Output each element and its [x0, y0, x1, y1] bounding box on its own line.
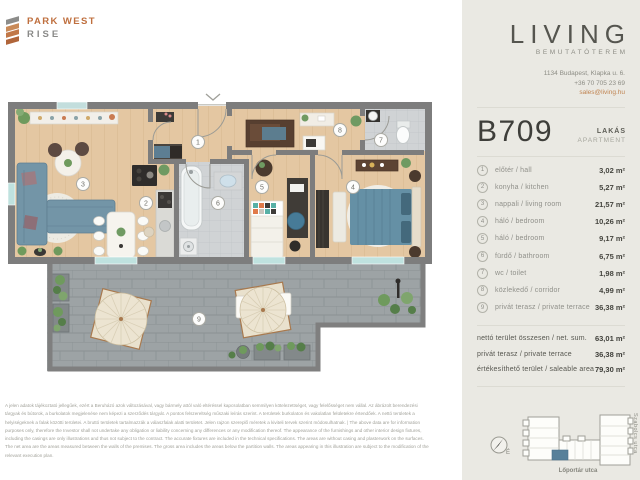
room-area: 10,26 m²: [595, 217, 625, 226]
room-number-badge: 8: [477, 285, 488, 296]
total-row: privát terasz / private terrace36,38 m²: [477, 347, 625, 362]
room-area: 4,99 m²: [599, 286, 625, 295]
plant: [159, 165, 170, 176]
room-row: 7wc / toilet1,98 m²: [477, 265, 625, 282]
phone-number: +36 70 705 23 69: [477, 79, 625, 89]
room-name: konyha / kitchen: [495, 184, 549, 191]
compass-icon: É: [491, 437, 510, 456]
svg-text:5: 5: [260, 185, 264, 192]
email-link[interactable]: sales@living.hu: [477, 88, 625, 98]
plan-badge-7: 7: [375, 134, 388, 147]
unit-highlight: [552, 450, 568, 460]
room-name: közlekedő / corridor: [495, 287, 560, 294]
plan-badge-3: 3: [77, 178, 90, 191]
unit-type-en: APARTMENT: [578, 137, 627, 144]
unit-code: B709: [477, 117, 553, 147]
room-number-badge: 4: [477, 216, 488, 227]
room-area: 9,17 m²: [599, 234, 625, 243]
bench: [333, 192, 346, 242]
unit-type-hu: LAKÁS: [578, 128, 627, 135]
disclaimer-line: tárgyak és bútorok, a burkolatok megjele…: [5, 410, 457, 418]
lamp: [397, 282, 400, 298]
total-value: 79,30 m²: [595, 365, 625, 374]
room-number-badge: 1: [477, 165, 488, 176]
total-row: értékesíthető terület / saleable area79,…: [477, 362, 625, 377]
room-row: 8közlekedő / corridor4,99 m²: [477, 282, 625, 299]
street-label-bottom: Lőportár utca: [559, 468, 598, 474]
disclaimer: A jelen adatok tájékoztató jellegűek, ez…: [5, 402, 457, 460]
svg-text:4: 4: [351, 185, 355, 192]
room-name: háló / bedroom: [495, 235, 545, 242]
plant: [351, 116, 362, 127]
disclaimer-line: The net area are the areas measured betw…: [5, 443, 457, 451]
room-row: 6fürdő / bathroom6,75 m²: [477, 247, 625, 264]
room-number-badge: 5: [477, 233, 488, 244]
room-name: nappali / living room: [495, 201, 561, 208]
building-outline: [523, 415, 633, 465]
room-row: 5háló / bedroom9,17 m²: [477, 230, 625, 247]
plant: [18, 247, 27, 256]
total-value: 63,01 m²: [595, 334, 625, 343]
living-wordmark: LIVING: [477, 20, 631, 48]
svg-text:1: 1: [196, 140, 200, 147]
chair: [75, 142, 89, 156]
room-area: 36,38 m²: [595, 303, 625, 312]
divider: [477, 107, 625, 108]
total-row: nettó terület összesen / net. sum.63,01 …: [477, 331, 625, 346]
room-row: 3nappali / living room21,57 m²: [477, 196, 625, 213]
room-number-badge: 6: [477, 251, 488, 262]
desk-chair: [288, 213, 305, 230]
room-number-badge: 3: [477, 199, 488, 210]
plan-badge-6: 6: [212, 197, 225, 210]
plan-badge-2: 2: [140, 197, 153, 210]
plan-badge-8: 8: [334, 124, 347, 137]
room-area: 3,02 m²: [599, 166, 625, 175]
wardrobe: [316, 190, 329, 248]
svg-text:9: 9: [197, 317, 201, 324]
room-name: wc / toilet: [495, 270, 526, 277]
disclaimer-line: A jelen adatok tájékoztató jellegűek, ez…: [5, 402, 457, 410]
plan-badge-9: 9: [193, 313, 206, 326]
compass-label: É: [506, 449, 510, 456]
unit-type: LAKÁS APARTMENT: [578, 128, 626, 147]
room-number-badge: 2: [477, 182, 488, 193]
total-value: 36,38 m²: [595, 350, 625, 359]
wc-sink: [369, 112, 378, 121]
address-line: 1134 Budapest, Klapka u. 6.: [477, 69, 625, 79]
total-label: nettó terület összesen / net. sum.: [477, 335, 587, 342]
room-list: 1előtér / hall3,02 m² 2konyha / kitchen5…: [477, 162, 625, 317]
info-panel: LIVING BEMUTATÓTEREM 1134 Budapest, Klap…: [462, 0, 640, 480]
plan-badge-4: 4: [347, 181, 360, 194]
unit-header: B709 LAKÁS APARTMENT: [477, 117, 625, 147]
street-label-right: Szabolcs utca: [632, 413, 638, 454]
entrance-chevron-icon: [206, 94, 220, 100]
disclaimer-line: helyiségeknek a falak közötti területei.…: [5, 419, 457, 427]
svg-text:2: 2: [144, 201, 148, 208]
room-area: 6,75 m²: [599, 252, 625, 261]
sink: [160, 221, 171, 232]
brochure-page: PARK WEST RISE: [0, 0, 640, 480]
room-name: háló / bedroom: [495, 218, 545, 225]
room-row: 9privát terasz / private terrace36,38 m²: [477, 299, 625, 316]
parasol: [235, 282, 291, 338]
divider: [477, 386, 625, 387]
chair: [48, 143, 62, 157]
site-plan: É Szabolcs utca Lőportár utca: [462, 390, 640, 478]
room-name: privát terasz / private terrace: [495, 304, 590, 311]
svg-text:8: 8: [338, 128, 342, 135]
room-number-badge: 9: [477, 302, 488, 313]
room-name: fürdő / bathroom: [495, 253, 550, 260]
total-label: privát terasz / private terrace: [477, 351, 572, 358]
room-row: 2konyha / kitchen5,27 m²: [477, 179, 625, 196]
room-number-badge: 7: [477, 268, 488, 279]
disclaimer-line: relevant execution plan.: [5, 452, 457, 460]
divider: [477, 325, 625, 326]
total-label: értékesíthető terület / saleable area: [477, 366, 594, 373]
plant: [401, 158, 411, 168]
room-row: 1előtér / hall3,02 m²: [477, 162, 625, 179]
totals: nettó terület összesen / net. sum.63,01 …: [477, 331, 625, 377]
plan-badge-5: 5: [256, 181, 269, 194]
toilet: [397, 127, 410, 144]
washbasin: [220, 175, 236, 187]
room-row: 4háló / bedroom10,26 m²: [477, 213, 625, 230]
svg-text:7: 7: [379, 138, 383, 145]
room-area: 1,98 m²: [599, 269, 625, 278]
room-name: előtér / hall: [495, 167, 532, 174]
disclaimer-line: including the casings are only illustrat…: [5, 435, 457, 443]
dining-set: [94, 212, 149, 258]
living-subtitle: BEMUTATÓTEREM: [477, 49, 628, 56]
room-area: 5,27 m²: [599, 183, 625, 192]
room-area: 21,57 m²: [595, 200, 625, 209]
svg-text:3: 3: [81, 182, 85, 189]
disclaimer-line: purposes only, therefore the Investor sh…: [5, 427, 457, 435]
headboard: [412, 187, 421, 247]
contact-block: 1134 Budapest, Klapka u. 6. +36 70 705 2…: [477, 69, 625, 98]
side-table: [256, 160, 273, 177]
plan-badge-1: 1: [192, 136, 205, 149]
divider: [477, 156, 625, 157]
floor-plan: 1 2 3 4 5 6 7 8 9: [0, 0, 460, 400]
svg-text:6: 6: [216, 201, 220, 208]
